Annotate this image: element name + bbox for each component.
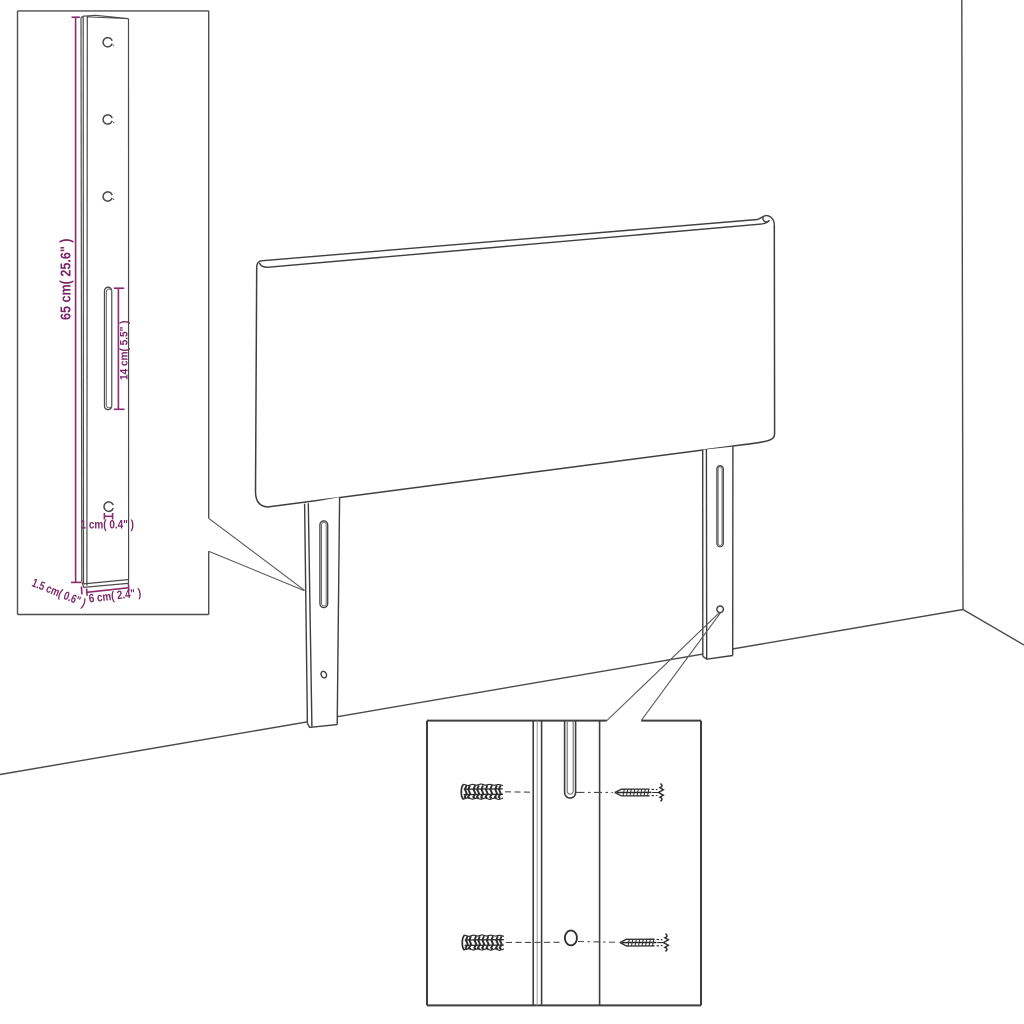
svg-text:14 cm( 5.5" ): 14 cm( 5.5" ) xyxy=(119,320,131,380)
svg-text:1 cm( 0.4" ): 1 cm( 0.4" ) xyxy=(81,518,135,532)
svg-text:65 cm( 25.6" ): 65 cm( 25.6" ) xyxy=(59,238,75,320)
